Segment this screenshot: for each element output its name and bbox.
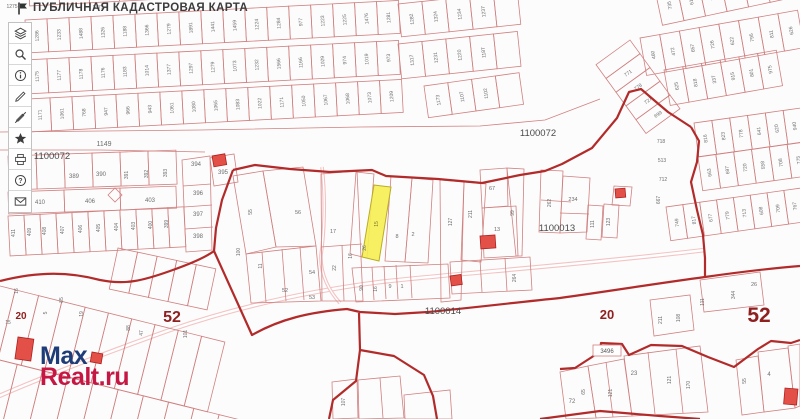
parcel-number: 721 xyxy=(709,0,717,1)
parcel-number: 67 xyxy=(489,186,495,192)
parcel-number: 1175 xyxy=(34,71,41,82)
draw-button[interactable] xyxy=(9,107,31,128)
parcel-number: 15 xyxy=(374,221,380,227)
parcel-number: 405 xyxy=(96,224,102,233)
parcel-number: 1225 xyxy=(342,14,349,26)
parcel-number: 1073 xyxy=(367,92,374,104)
parcel-number: 16 xyxy=(348,253,354,259)
parcel-number: 817 xyxy=(691,215,698,224)
parcel-number: 11 xyxy=(258,263,264,268)
printer-icon xyxy=(14,153,27,166)
layers-icon xyxy=(14,27,27,40)
parcel-number: 1297 xyxy=(188,62,195,74)
parcel-number: 1476 xyxy=(364,13,371,25)
parcel-number: 400 xyxy=(148,221,154,230)
parcel-number: 1281 xyxy=(386,12,393,24)
parcel-number: 5 xyxy=(43,311,49,314)
parcel-number: 977 xyxy=(298,18,304,27)
parcel-number: 262 xyxy=(547,199,553,208)
quarter-label: 1100014 xyxy=(425,306,461,317)
parcel-number: 19 xyxy=(79,311,85,317)
parcel-number: 1171 xyxy=(279,96,286,107)
parcel-number: 234 xyxy=(568,197,577,203)
parcel-number: 1488 xyxy=(78,28,85,40)
parcel-number: 393 xyxy=(163,169,169,178)
parcel-number: 697 xyxy=(724,165,731,174)
parcel-number: 767 xyxy=(792,201,799,210)
parcel-number: 708 xyxy=(778,158,785,167)
parcel-number: 403 xyxy=(145,198,156,204)
parcel-number: 778 xyxy=(738,129,745,138)
parcel-number: 1176 xyxy=(100,67,107,78)
parcel-number: 1441 xyxy=(210,21,217,33)
parcel-number: 407 xyxy=(60,226,66,235)
parcel-number: 1188 xyxy=(122,26,129,37)
quarter-label: 1100072 xyxy=(34,151,70,162)
parcel-number: 170 xyxy=(686,381,692,390)
help-button[interactable]: ? xyxy=(9,170,31,191)
parcel-number: 1178 xyxy=(78,68,85,79)
quarter-label: 20 xyxy=(15,311,27,322)
parcel-number: 1284 xyxy=(276,17,283,29)
parcel-number: 65 xyxy=(581,389,587,395)
measure-button[interactable] xyxy=(9,86,31,107)
quarter-label: 1100013 xyxy=(539,223,575,234)
building[interactable] xyxy=(480,235,496,249)
parcel-number: 720 xyxy=(742,163,749,172)
parcel-number: 52 xyxy=(282,288,288,294)
parcel-number: 211 xyxy=(468,210,474,218)
cadastral-map-app: 1286123314881326118813661279189114411459… xyxy=(0,0,800,419)
parcel-number: 974 xyxy=(342,56,348,65)
parcel-number: 85 xyxy=(59,297,65,303)
parcel-number: 8 xyxy=(395,234,398,240)
parcel-number: 1377 xyxy=(166,64,173,76)
parcel-number: 403 xyxy=(131,222,137,231)
parcel-number: 1022 xyxy=(257,97,264,109)
envelope-icon xyxy=(14,195,27,208)
building[interactable] xyxy=(615,188,626,198)
parcel-number: 26 xyxy=(362,245,368,251)
parcel-number: 677 xyxy=(708,213,715,222)
parcel-number: 16 xyxy=(373,286,379,292)
parcel-number: 121 xyxy=(608,389,614,398)
parcel-number: 56 xyxy=(295,210,301,216)
parcel-number: 966 xyxy=(125,106,131,115)
parcel-number: 779 xyxy=(724,211,731,220)
parcel-number: 615 xyxy=(688,0,696,5)
parcel-number: 9 xyxy=(388,284,391,290)
parcel-number: 1183 xyxy=(122,66,129,77)
parcel-number: 667 xyxy=(656,196,662,205)
parcel-number: 1891 xyxy=(188,22,195,34)
parcel-number: 1286 xyxy=(34,30,41,42)
parcel-number: 712 xyxy=(659,177,668,183)
parcel-number: 100 xyxy=(236,248,242,257)
parcel-number: 1237 xyxy=(480,5,487,17)
parcel-number: 1067 xyxy=(323,94,330,106)
favorites-button[interactable] xyxy=(9,128,31,149)
quarter-label: 1149 xyxy=(96,141,111,148)
feedback-button[interactable] xyxy=(9,191,31,212)
maxrealt-watermark: Max Realt.ru xyxy=(40,346,129,388)
parcel-number: 1232 xyxy=(254,59,261,71)
parcel-number: 1 xyxy=(400,284,403,290)
parcel-number: 389 xyxy=(69,174,80,180)
print-button[interactable] xyxy=(9,149,31,170)
parcel-number: 107 xyxy=(341,398,347,407)
parcel-number: 111 xyxy=(590,220,596,228)
app-header: ПУБЛИЧНАЯ КАДАСТРОВАЯ КАРТА xyxy=(16,1,248,15)
quarter-label: 1100072 xyxy=(520,128,556,139)
building[interactable] xyxy=(450,274,462,285)
info-icon xyxy=(14,69,27,82)
parcel-number: 406 xyxy=(78,225,84,234)
parcel-number: 663 xyxy=(706,168,713,177)
parcel-number: 709 xyxy=(775,204,782,213)
parcel-number: 1317 xyxy=(409,54,416,66)
parcel-number: 1073 xyxy=(232,60,239,72)
parcel-number: 940 xyxy=(792,121,799,130)
parcel-number: 1224 xyxy=(254,18,261,30)
building[interactable] xyxy=(784,388,798,405)
parcel-number: 1326 xyxy=(100,26,107,38)
parcel-number: 1279 xyxy=(166,23,173,35)
parcel-number: 390 xyxy=(96,172,107,178)
parcel-number: 404 xyxy=(114,223,120,232)
quarter-label: 52 xyxy=(747,304,770,327)
parcel-number: 15 xyxy=(5,320,11,326)
parcel-number: 1324 xyxy=(433,11,440,23)
parcel-number: 823 xyxy=(720,131,727,140)
parcel-number: 344 xyxy=(731,291,737,300)
star-icon xyxy=(14,132,27,145)
parcel-number: 558 xyxy=(760,160,767,169)
app-logo-flag-icon xyxy=(16,1,28,15)
parcel-number: 768 xyxy=(81,108,87,117)
parcel-number: 123 xyxy=(606,218,612,227)
quarter-label: 20 xyxy=(600,307,614,322)
parcel-number: 513 xyxy=(658,158,667,164)
parcel-number: 641 xyxy=(756,126,763,135)
parcel-number: 1233 xyxy=(56,29,63,41)
parcel-number: 54 xyxy=(309,270,315,276)
pencil-slash-icon xyxy=(14,111,27,124)
parcel-number: 1366 xyxy=(144,24,151,36)
parcel-number: 398 xyxy=(193,234,204,240)
parcel-number: 1223 xyxy=(320,15,327,27)
question-icon: ? xyxy=(14,174,27,187)
search-icon xyxy=(14,48,27,61)
parcel-number: 108 xyxy=(676,314,682,323)
parcel-number: 2 xyxy=(411,232,414,238)
parcel-number: 22 xyxy=(332,265,338,271)
parcel-number: 406 xyxy=(85,199,96,205)
parcel-number: 410 xyxy=(35,200,46,206)
parcel-number: 409 xyxy=(27,228,33,237)
parcel-number: 411 xyxy=(11,229,17,237)
parcel-number: 16 xyxy=(14,288,20,294)
parcel-number: 47 xyxy=(139,330,145,336)
quarter-label: 3496 xyxy=(600,349,614,355)
parcel-number: 1459 xyxy=(232,20,239,32)
parcel-number: 23 xyxy=(631,371,638,377)
parcel-number: 1177 xyxy=(56,69,63,80)
parcel-number: 1282 xyxy=(409,13,416,25)
parcel-number: 1220 xyxy=(457,49,464,61)
parcel-number: 55 xyxy=(248,209,254,215)
layers-button[interactable] xyxy=(9,23,31,44)
parcel-number: 1029 xyxy=(320,55,327,67)
parcel-number: 101 xyxy=(183,330,189,339)
parcel-number: 713 xyxy=(741,208,748,217)
parcel-number: 1166 xyxy=(298,57,305,68)
parcel-number: 88 xyxy=(126,325,132,331)
parcel-number: 394 xyxy=(191,162,202,168)
parcel-number: 391 xyxy=(124,171,130,180)
parcel-number: 1566 xyxy=(276,58,283,70)
parcel-number: 264 xyxy=(512,274,518,283)
parcel-number: 1279 xyxy=(210,61,217,73)
parcel-number: 53 xyxy=(309,295,315,301)
parcel-number: 1061 xyxy=(169,102,176,114)
quarter-label: 52 xyxy=(163,309,181,326)
parcel-number: 1065 xyxy=(213,100,220,112)
parcel-number: 1080 xyxy=(191,101,198,113)
parcel-number: 1061 xyxy=(59,108,66,120)
parcel-number: 1231 xyxy=(433,51,440,63)
parcel-number: 17 xyxy=(330,229,336,235)
parcel-number: 608 xyxy=(758,206,765,215)
parcel-number: 1014 xyxy=(144,65,151,77)
parcel-number: 408 xyxy=(42,227,48,236)
parcel-number: 396 xyxy=(193,191,204,197)
parcel-number: 1050 xyxy=(301,95,308,107)
parcel-number: 397 xyxy=(193,212,204,218)
pencil-icon xyxy=(14,90,27,103)
parcel-number: 1234 xyxy=(457,8,464,20)
parcel-number: 1171 xyxy=(37,109,44,120)
parcel-number: 775 xyxy=(796,155,800,164)
parcel-number: 99 xyxy=(510,210,516,216)
parcel-number: 55 xyxy=(742,378,748,384)
building[interactable] xyxy=(15,337,34,361)
parcel-number: 395 xyxy=(218,170,229,176)
parcel-number: 392 xyxy=(144,170,150,179)
parcel-number: 973 xyxy=(386,53,392,62)
parcel-number: 90 xyxy=(359,285,365,291)
map-toolbar: ? xyxy=(8,22,32,213)
parcel-number: 1209 xyxy=(389,91,396,103)
parcel-number: 816 xyxy=(702,134,709,143)
parcel-number: 1187 xyxy=(481,47,488,59)
svg-text:?: ? xyxy=(18,177,22,184)
info-button[interactable] xyxy=(9,65,31,86)
parcel-number: 26 xyxy=(751,282,757,288)
parcel-number: 111 xyxy=(700,298,706,306)
parcel-number: 1019 xyxy=(364,53,371,65)
parcel-number: 127 xyxy=(448,218,454,227)
parcel-number: 1083 xyxy=(235,99,242,111)
parcel-number: 620 xyxy=(774,124,781,133)
page-title: ПУБЛИЧНАЯ КАДАСТРОВАЯ КАРТА xyxy=(33,2,248,14)
parcel-number: 749 xyxy=(674,218,681,227)
search-button[interactable] xyxy=(9,44,31,65)
parcel-number: 943 xyxy=(147,105,153,114)
watermark-line-2: Realt.ru xyxy=(40,367,129,388)
parcel-number: 121 xyxy=(667,376,673,385)
parcel-number: 1068 xyxy=(345,93,352,105)
parcel-number: 399 xyxy=(164,220,170,229)
parcel-number: 72 xyxy=(569,399,576,405)
parcel-number: 947 xyxy=(103,107,109,116)
parcel-number: 211 xyxy=(658,316,664,324)
parcel-number: 13 xyxy=(494,227,500,233)
parcel-number: 718 xyxy=(657,139,666,145)
building[interactable] xyxy=(212,154,227,167)
